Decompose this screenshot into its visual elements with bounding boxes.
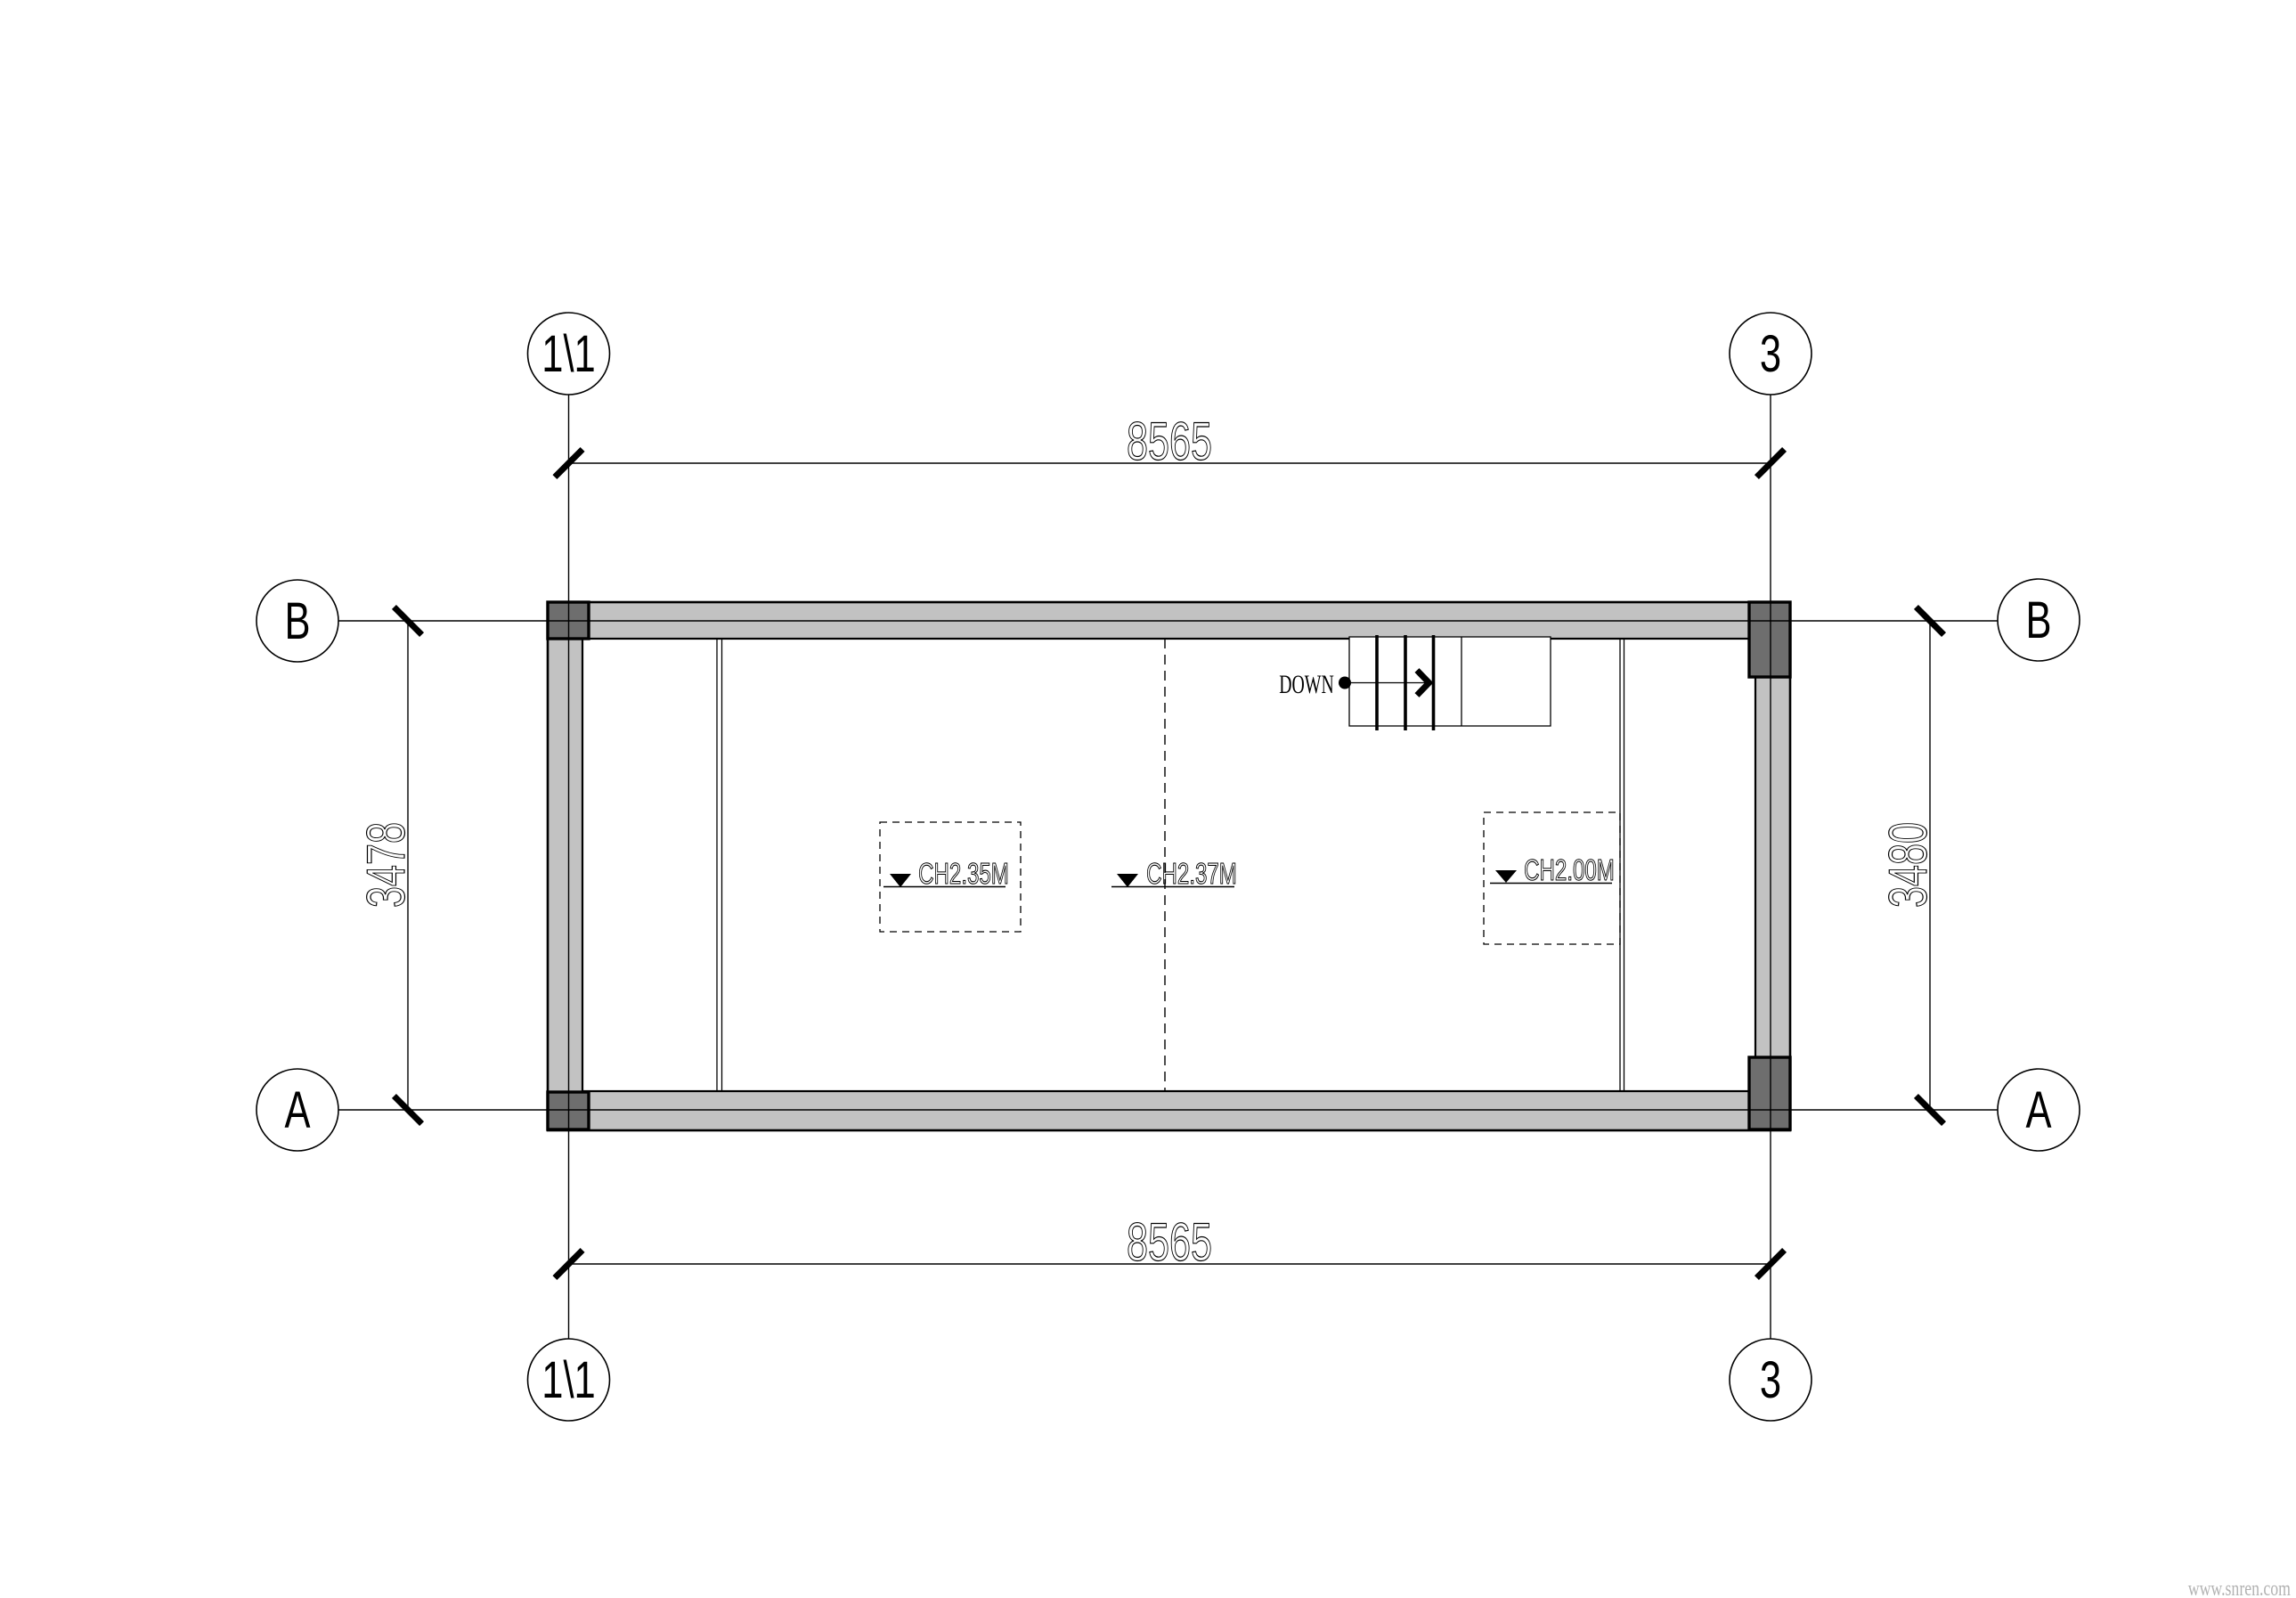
svg-text:3480: 3480: [1879, 822, 1939, 908]
svg-text:B: B: [284, 592, 310, 649]
svg-text:3478: 3478: [357, 822, 417, 908]
svg-text:CH2.00M: CH2.00M: [1524, 854, 1615, 887]
svg-text:A: A: [284, 1081, 311, 1138]
svg-text:1\1: 1\1: [541, 325, 595, 382]
svg-text:CH2.35M: CH2.35M: [918, 858, 1009, 891]
svg-text:CH2.37M: CH2.37M: [1146, 858, 1237, 891]
svg-text:A: A: [2025, 1081, 2052, 1138]
svg-text:www.snren.com: www.snren.com: [2188, 1576, 2292, 1598]
svg-text:8565: 8565: [1127, 412, 1212, 472]
svg-text:1\1: 1\1: [541, 1351, 595, 1408]
svg-text:B: B: [2025, 591, 2051, 648]
svg-text:8565: 8565: [1127, 1213, 1212, 1273]
svg-text:3: 3: [1760, 1351, 1781, 1408]
svg-text:DOWN: DOWN: [1279, 670, 1334, 699]
svg-text:3: 3: [1760, 325, 1781, 382]
